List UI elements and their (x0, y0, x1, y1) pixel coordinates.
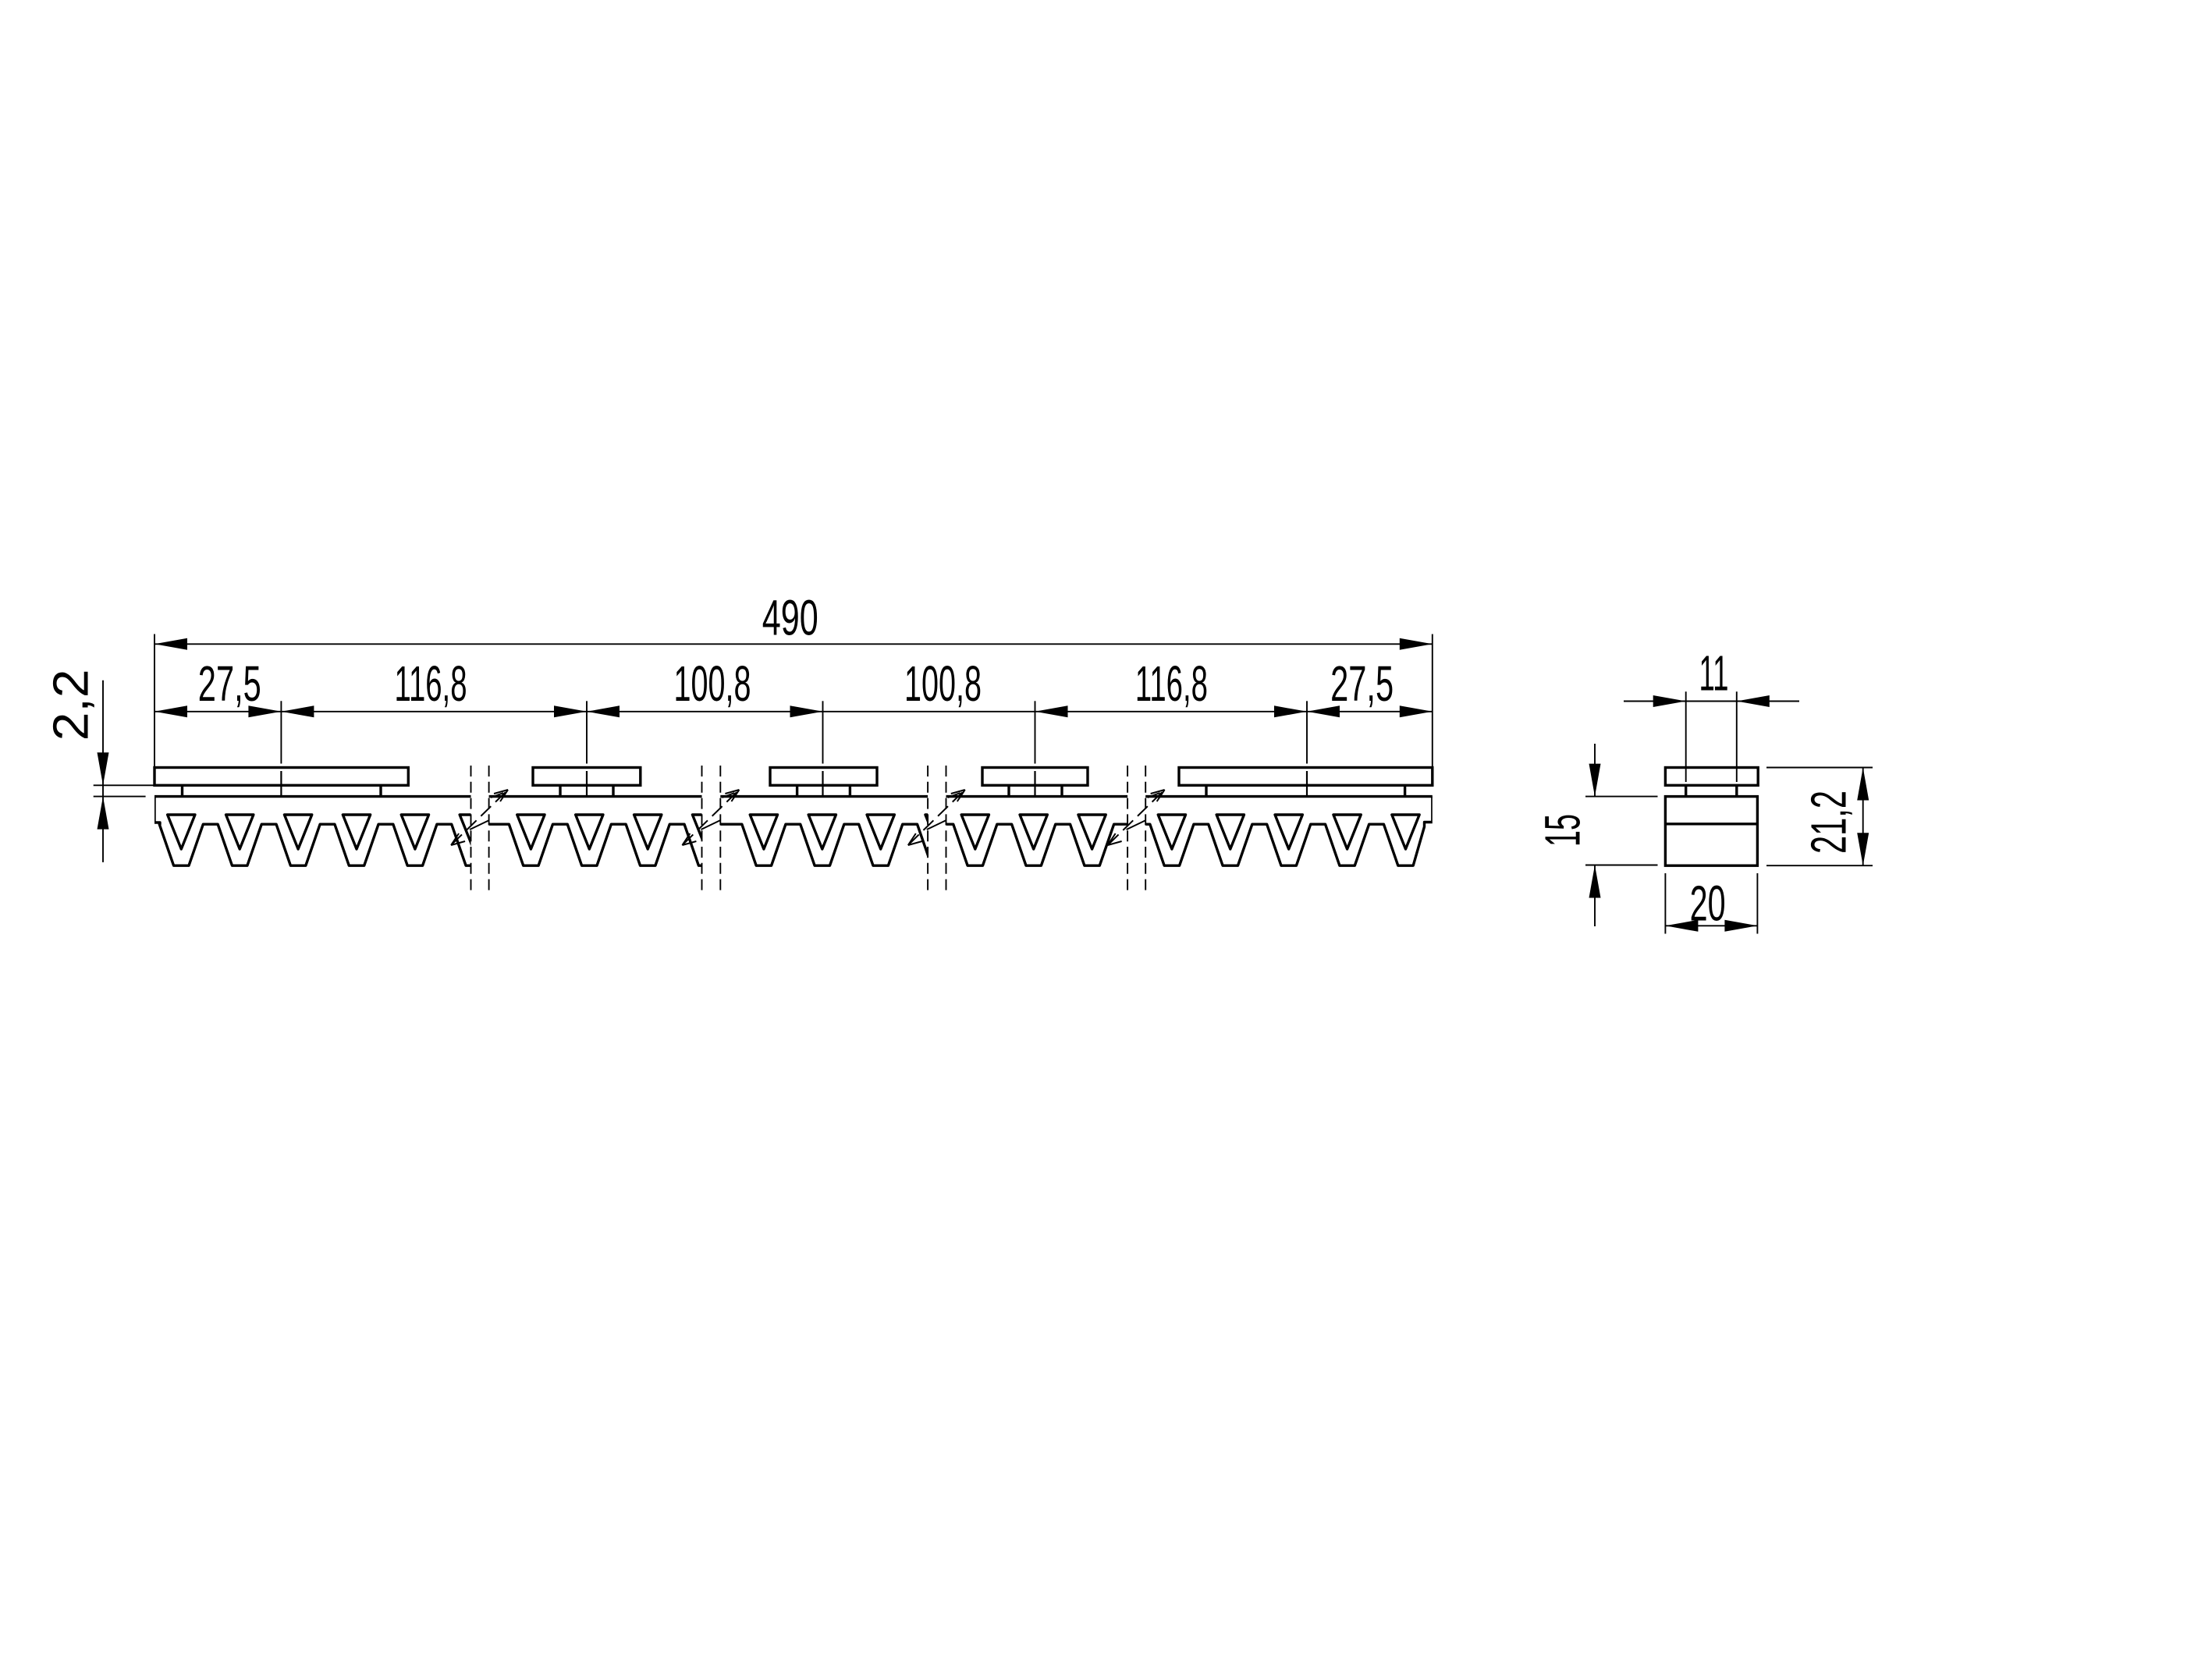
svg-text:490: 490 (762, 590, 818, 646)
svg-text:27,5: 27,5 (1330, 656, 1394, 712)
svg-text:100,8: 100,8 (674, 656, 751, 712)
svg-text:116,8: 116,8 (395, 656, 467, 712)
svg-text:15: 15 (1534, 814, 1590, 847)
svg-text:11: 11 (1699, 645, 1729, 702)
svg-text:20: 20 (1690, 876, 1726, 932)
svg-text:116,8: 116,8 (1135, 656, 1208, 712)
svg-text:2,2: 2,2 (43, 669, 99, 741)
svg-text:100,8: 100,8 (904, 656, 982, 712)
svg-text:27,5: 27,5 (198, 656, 261, 712)
svg-text:21,2: 21,2 (1801, 791, 1857, 854)
